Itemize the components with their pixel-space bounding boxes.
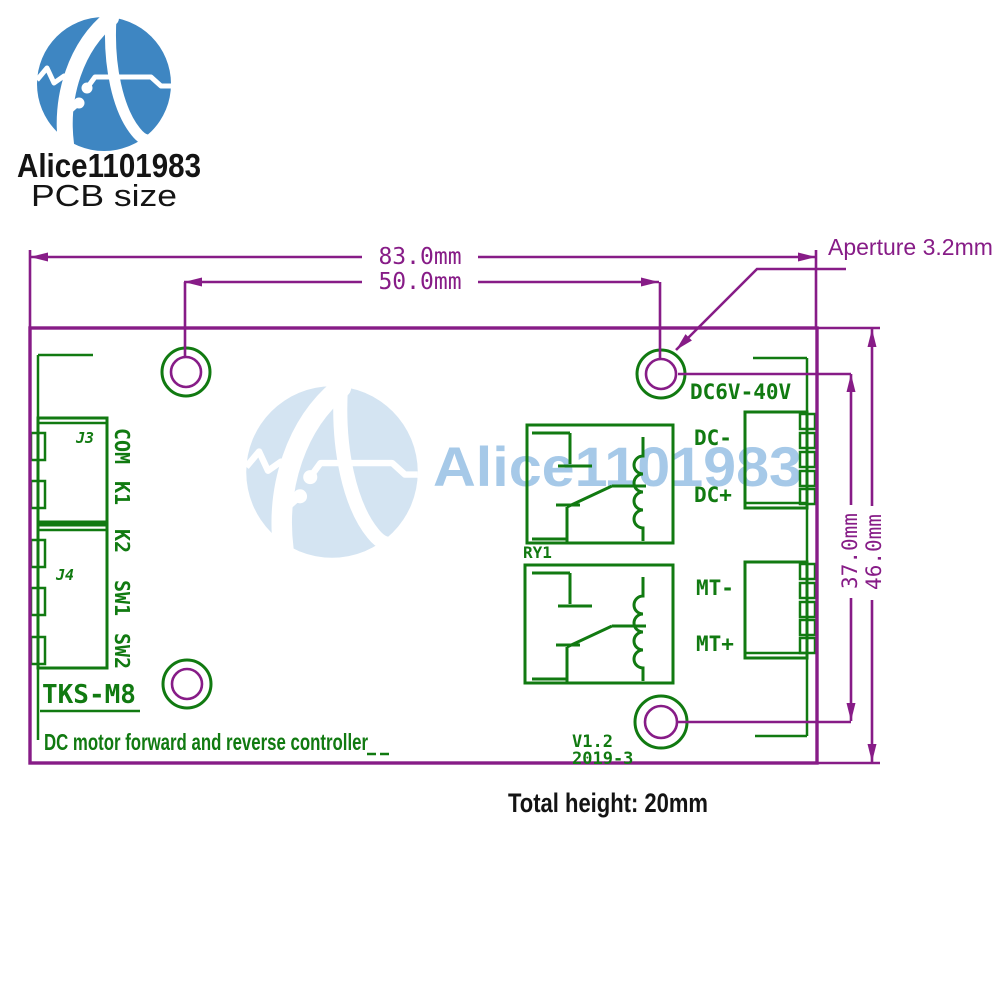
power-rating-label: DC6V-40V: [690, 380, 792, 404]
dimension-board-height-label: 46.0mm: [862, 514, 886, 590]
connector-j3-label: J3: [75, 429, 94, 447]
watermark-logo-icon: [246, 386, 418, 558]
pin-label-sw1: SW1: [110, 580, 134, 616]
connector-block-j4: [31, 525, 107, 668]
dimension-hole-spacing-y-label: 37.0mm: [838, 513, 862, 589]
watermark-text: Alice1101983: [433, 435, 802, 498]
pcb-size-diagram: Alice1101983 Alice1101983 PCB size: [0, 0, 1000, 1000]
dimension-board-width-label: 83.0mm: [378, 244, 461, 270]
diagram-svg: Alice1101983 Alice1101983 PCB size: [0, 0, 1000, 1000]
terminal-dc-plus-label: DC+: [694, 483, 732, 507]
terminal-mt-plus-label: MT+: [696, 632, 734, 656]
model-label: TKS-M8: [42, 680, 136, 710]
board-description: DC motor forward and reverse controller: [44, 729, 368, 755]
pin-label-k1: K1: [110, 481, 134, 505]
dimension-hole-spacing-x-label: 50.0mm: [378, 269, 461, 295]
terminal-dc-minus-label: DC-: [694, 426, 732, 450]
total-height-label: Total height: 20mm: [508, 788, 708, 818]
silkscreen-art: [31, 355, 815, 754]
connector-block-j3: [31, 418, 107, 522]
brand-header: Alice1101983 PCB size: [17, 17, 201, 213]
terminal-mt-minus-label: MT-: [696, 576, 734, 600]
inner-outline: [38, 355, 807, 740]
brand-tagline: PCB size: [31, 178, 177, 213]
brand-logo-icon: [37, 17, 171, 151]
pin-label-com: COM: [110, 428, 134, 464]
watermark: Alice1101983: [246, 386, 802, 558]
relay-symbol-2: [525, 565, 673, 683]
date-label: 2019-3: [572, 749, 633, 769]
pin-label-k2: K2: [110, 529, 134, 553]
pin-label-sw2: SW2: [110, 633, 134, 669]
connector-j4-label: J4: [55, 566, 74, 584]
terminal-block-mt: [745, 562, 815, 658]
aperture-label: Aperture 3.2mm: [828, 234, 993, 260]
relay-coil-2: [634, 577, 643, 681]
mounting-hole-bottom-left: [163, 660, 211, 708]
aperture-leader-line: [676, 269, 846, 350]
relay-label: RY1: [523, 543, 552, 562]
